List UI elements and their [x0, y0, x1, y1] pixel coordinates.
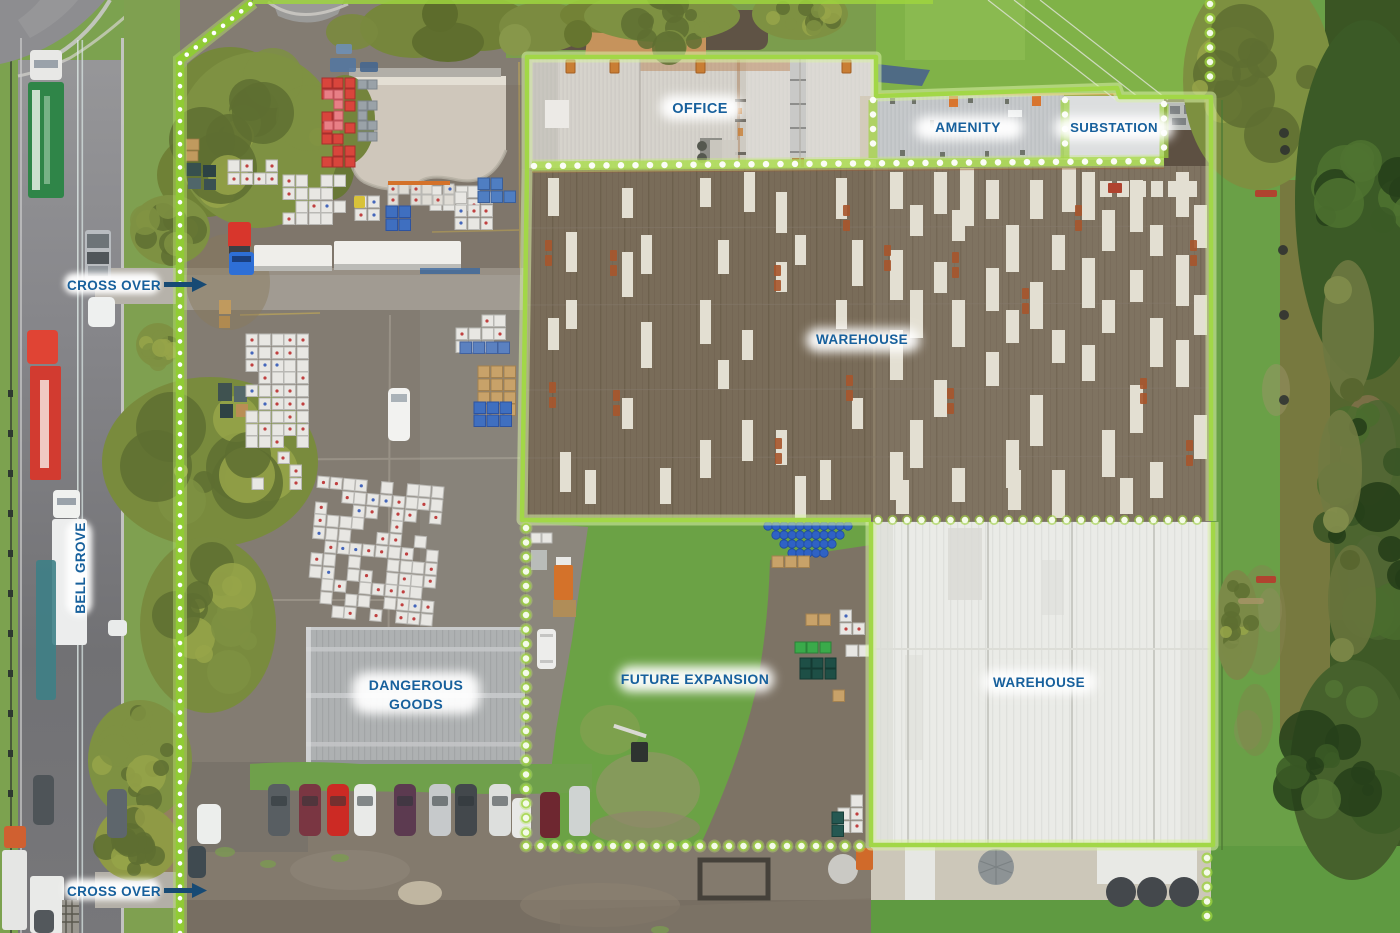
svg-text:GOODS: GOODS	[389, 696, 443, 712]
svg-text:CROSS OVER: CROSS OVER	[67, 884, 161, 899]
svg-text:WAREHOUSE: WAREHOUSE	[993, 675, 1085, 690]
svg-text:CROSS OVER: CROSS OVER	[67, 278, 161, 293]
svg-text:BELL GROVE: BELL GROVE	[73, 522, 88, 614]
svg-text:WAREHOUSE: WAREHOUSE	[816, 332, 908, 347]
svg-text:DANGEROUS: DANGEROUS	[369, 677, 464, 693]
svg-text:SUBSTATION: SUBSTATION	[1070, 120, 1158, 135]
svg-text:AMENITY: AMENITY	[935, 119, 1001, 135]
svg-text:FUTURE EXPANSION: FUTURE EXPANSION	[621, 671, 770, 687]
svg-text:OFFICE: OFFICE	[672, 101, 728, 117]
